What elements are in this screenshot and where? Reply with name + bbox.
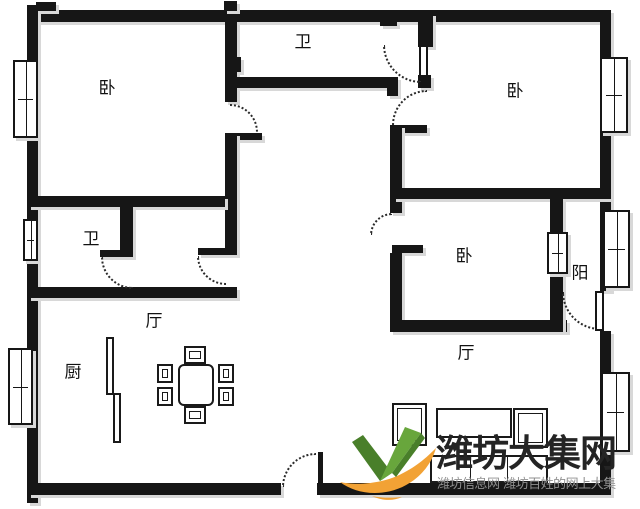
room-label-bath-top: 卫: [295, 35, 312, 52]
door-swing-arc: [101, 257, 133, 289]
furniture-dining-chair: [157, 364, 173, 383]
furniture-dining-chair: [218, 387, 234, 406]
wall-segment: [36, 2, 56, 11]
furniture-cushion: [189, 351, 201, 359]
watermark-logo-icon: [336, 406, 442, 504]
furniture-kitchen-partition-b: [113, 393, 121, 443]
door-leaf: [595, 291, 604, 331]
floorplan-canvas: 卧卫卧卫厅厨卧阳厅 潍坊大集网 潍坊信息网 潍坊百姓的网上大集: [0, 0, 640, 509]
wall-segment: [225, 133, 237, 255]
room-label-bath-left: 卫: [83, 232, 100, 249]
door-swing-arc: [197, 256, 226, 285]
room-label-dining-hall: 厅: [146, 314, 163, 331]
room-label-living-hall: 厅: [458, 346, 475, 363]
wall-segment: [28, 483, 281, 495]
furniture-dining-chair: [218, 364, 234, 383]
furniture-dining-table: [178, 364, 214, 406]
wall-segment: [235, 57, 241, 72]
window-tick: [607, 412, 625, 413]
window: [23, 219, 38, 261]
wall-segment: [198, 248, 237, 255]
furniture-cushion: [162, 369, 168, 378]
furniture-cushion: [162, 392, 168, 401]
wall-segment: [28, 196, 225, 207]
wall-segment: [393, 188, 611, 199]
room-label-bedroom-middle: 卧: [456, 249, 473, 266]
room-label-kitchen: 厨: [65, 365, 82, 382]
window-tick: [552, 253, 564, 254]
door-swing-arc: [370, 213, 392, 235]
logo-swoosh-tail: [372, 496, 402, 500]
wall-segment: [380, 20, 397, 26]
wall-segment: [120, 207, 133, 251]
room-label-bedroom-top-right: 卧: [507, 84, 524, 101]
wall-segment: [387, 88, 398, 96]
window-tick: [13, 387, 28, 388]
window-tick: [606, 95, 623, 96]
door-swing-arc: [282, 453, 316, 487]
window: [8, 348, 33, 425]
window: [13, 60, 38, 138]
door-leaf: [318, 452, 323, 483]
wall-segment: [390, 320, 567, 332]
watermark-title: 潍坊大集网: [436, 435, 616, 472]
furniture-kitchen-partition-a: [106, 337, 114, 395]
furniture-cushion: [223, 369, 229, 378]
furniture-dining-chair: [157, 387, 173, 406]
door-swing-arc: [230, 104, 258, 132]
window: [547, 232, 568, 274]
wall-segment: [237, 77, 398, 88]
wall-segment: [224, 1, 237, 11]
window: [600, 57, 628, 133]
furniture-cushion: [189, 411, 201, 419]
window-tick: [608, 249, 624, 250]
wall-segment: [418, 13, 433, 47]
window: [603, 210, 630, 288]
watermark-tagline: 潍坊信息网 潍坊百姓的网上大集: [437, 477, 616, 493]
window-tick: [27, 240, 35, 241]
room-label-balcony: 阳: [572, 266, 589, 283]
door-leaf: [419, 45, 428, 77]
wall-segment: [392, 245, 423, 253]
wall-segment: [100, 250, 133, 257]
furniture-dining-chair: [184, 346, 206, 364]
wall-segment: [28, 10, 611, 22]
room-label-bedroom-top-left: 卧: [99, 81, 116, 98]
wall-segment: [390, 125, 402, 213]
window-tick: [18, 99, 33, 100]
furniture-dining-chair: [184, 406, 206, 424]
furniture-cushion: [223, 392, 229, 401]
